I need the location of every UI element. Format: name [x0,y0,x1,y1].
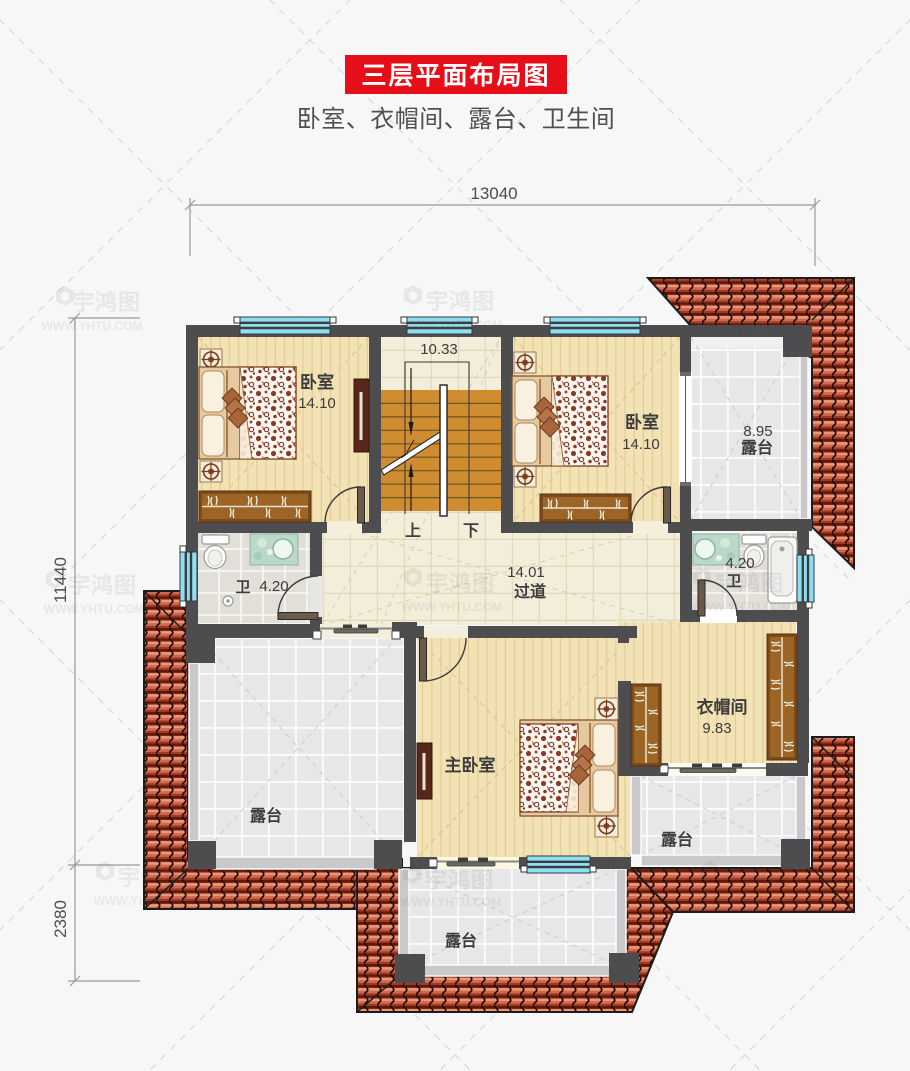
svg-text:卧室、衣帽间、露台、卫生间: 卧室、衣帽间、露台、卫生间 [297,106,616,133]
svg-text:2380: 2380 [51,900,70,938]
svg-text:WWW.YHTU.COM: WWW.YHTU.COM [691,600,792,614]
svg-text:14.10: 14.10 [298,395,336,412]
svg-text:宇鸿图: 宇鸿图 [72,290,141,315]
svg-text:14.01: 14.01 [507,564,545,581]
svg-text:露台: 露台 [661,830,693,849]
svg-text:9.83: 9.83 [702,720,731,737]
svg-text:WWW.YHTU.COM: WWW.YHTU.COM [94,894,195,908]
svg-text:WWW.YHTU.COM: WWW.YHTU.COM [402,600,503,614]
svg-text:过道: 过道 [514,582,546,601]
svg-text:13040: 13040 [470,184,517,203]
svg-text:4.20: 4.20 [259,578,288,595]
svg-text:下: 下 [463,523,479,540]
svg-text:卧室: 卧室 [300,372,334,392]
svg-text:WWW.YHTU.COM: WWW.YHTU.COM [42,319,143,333]
svg-text:WWW.YHTU.COM: WWW.YHTU.COM [401,895,502,909]
svg-text:衣帽间: 衣帽间 [697,697,748,717]
svg-text:宇鸿图: 宇鸿图 [425,868,494,893]
svg-text:WWW.YHTU.COM: WWW.YHTU.COM [694,320,795,334]
svg-text:宇鸿图: 宇鸿图 [723,865,792,890]
svg-text:宇鸿图: 宇鸿图 [118,865,187,890]
svg-text:三层平面布局图: 三层平面布局图 [361,61,550,90]
svg-text:上: 上 [405,522,421,540]
svg-text:宇鸿图: 宇鸿图 [68,573,137,598]
svg-text:露台: 露台 [741,438,773,457]
svg-text:宇鸿图: 宇鸿图 [426,571,495,596]
svg-text:8.95: 8.95 [743,423,772,440]
svg-text:卫: 卫 [235,579,250,596]
svg-text:10.33: 10.33 [420,341,458,358]
svg-text:宇鸿图: 宇鸿图 [426,289,495,314]
svg-text:宇鸿图: 宇鸿图 [718,291,787,316]
svg-text:4.20: 4.20 [725,555,754,572]
svg-text:WWW.YHTU.COM: WWW.YHTU.COM [402,318,503,332]
svg-text:露台: 露台 [445,931,477,950]
svg-text:宇鸿图: 宇鸿图 [715,571,784,596]
svg-text:14.10: 14.10 [622,436,660,453]
svg-text:WWW.YHTU.COM: WWW.YHTU.COM [699,894,800,908]
svg-text:WWW.YHTU.COM: WWW.YHTU.COM [44,602,145,616]
svg-text:主卧室: 主卧室 [445,755,496,775]
svg-text:露台: 露台 [250,806,282,825]
svg-text:卧室: 卧室 [625,412,659,432]
